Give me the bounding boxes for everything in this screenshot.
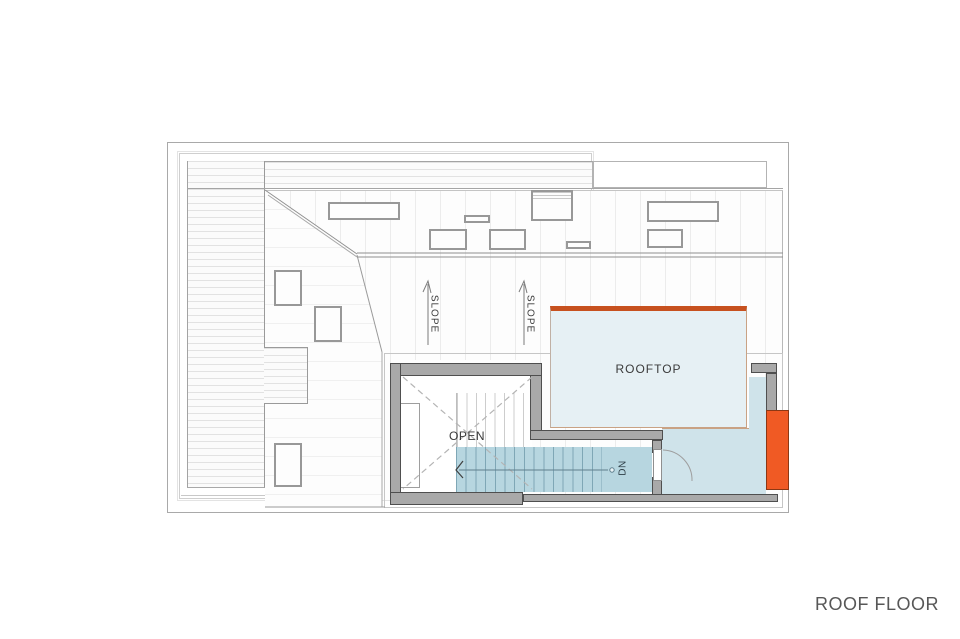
rooftop-label: ROOFTOP: [615, 362, 681, 376]
stair-treads: [456, 447, 602, 492]
stairwell-landing-rect: [400, 403, 420, 488]
skylight: [647, 201, 719, 222]
elevator-shaft: [766, 410, 789, 490]
roof-column-underline: [181, 495, 266, 496]
corner-wall-horizontal: [751, 363, 777, 373]
slope-label-left: SLOPE: [429, 295, 440, 333]
skylight: [274, 270, 302, 306]
skylight: [274, 443, 302, 487]
skylight-vent: [531, 190, 573, 221]
stair-wall-top: [390, 363, 542, 376]
skylight-small: [566, 241, 591, 249]
open-label: OPEN: [449, 429, 485, 443]
parapet-wall-bottom: [523, 494, 778, 502]
skylight: [328, 202, 400, 220]
skylight: [489, 229, 526, 250]
landing-area: [662, 428, 766, 494]
stair-wall-over-flight: [530, 430, 663, 440]
skylight: [314, 306, 342, 342]
door-leaf: [653, 449, 662, 481]
floor-plan-canvas: ROOFTOP OPEN DN SLOPE SLOPE ROOF FLOOR: [0, 0, 960, 639]
left-roof-striped-column: [187, 161, 265, 488]
topright-roof-outline: [593, 161, 767, 188]
vent-louvers: [533, 192, 571, 199]
corner-wall-vertical: [766, 373, 777, 411]
stair-wall-left: [390, 363, 401, 505]
roof-top-edge: [187, 188, 783, 189]
slope-label-right: SLOPE: [525, 295, 536, 333]
roof-top-edge-inner: [265, 190, 783, 191]
roof-notch: [264, 347, 308, 404]
plan-title: ROOF FLOOR: [815, 594, 939, 615]
rooftop-area: ROOFTOP: [550, 306, 747, 428]
stair-wall-bottom: [390, 492, 523, 505]
skylight: [647, 229, 683, 248]
skylight: [429, 229, 467, 250]
down-label: DN: [618, 460, 629, 475]
landing-area-upper: [749, 377, 766, 429]
skylight-small: [464, 215, 490, 223]
